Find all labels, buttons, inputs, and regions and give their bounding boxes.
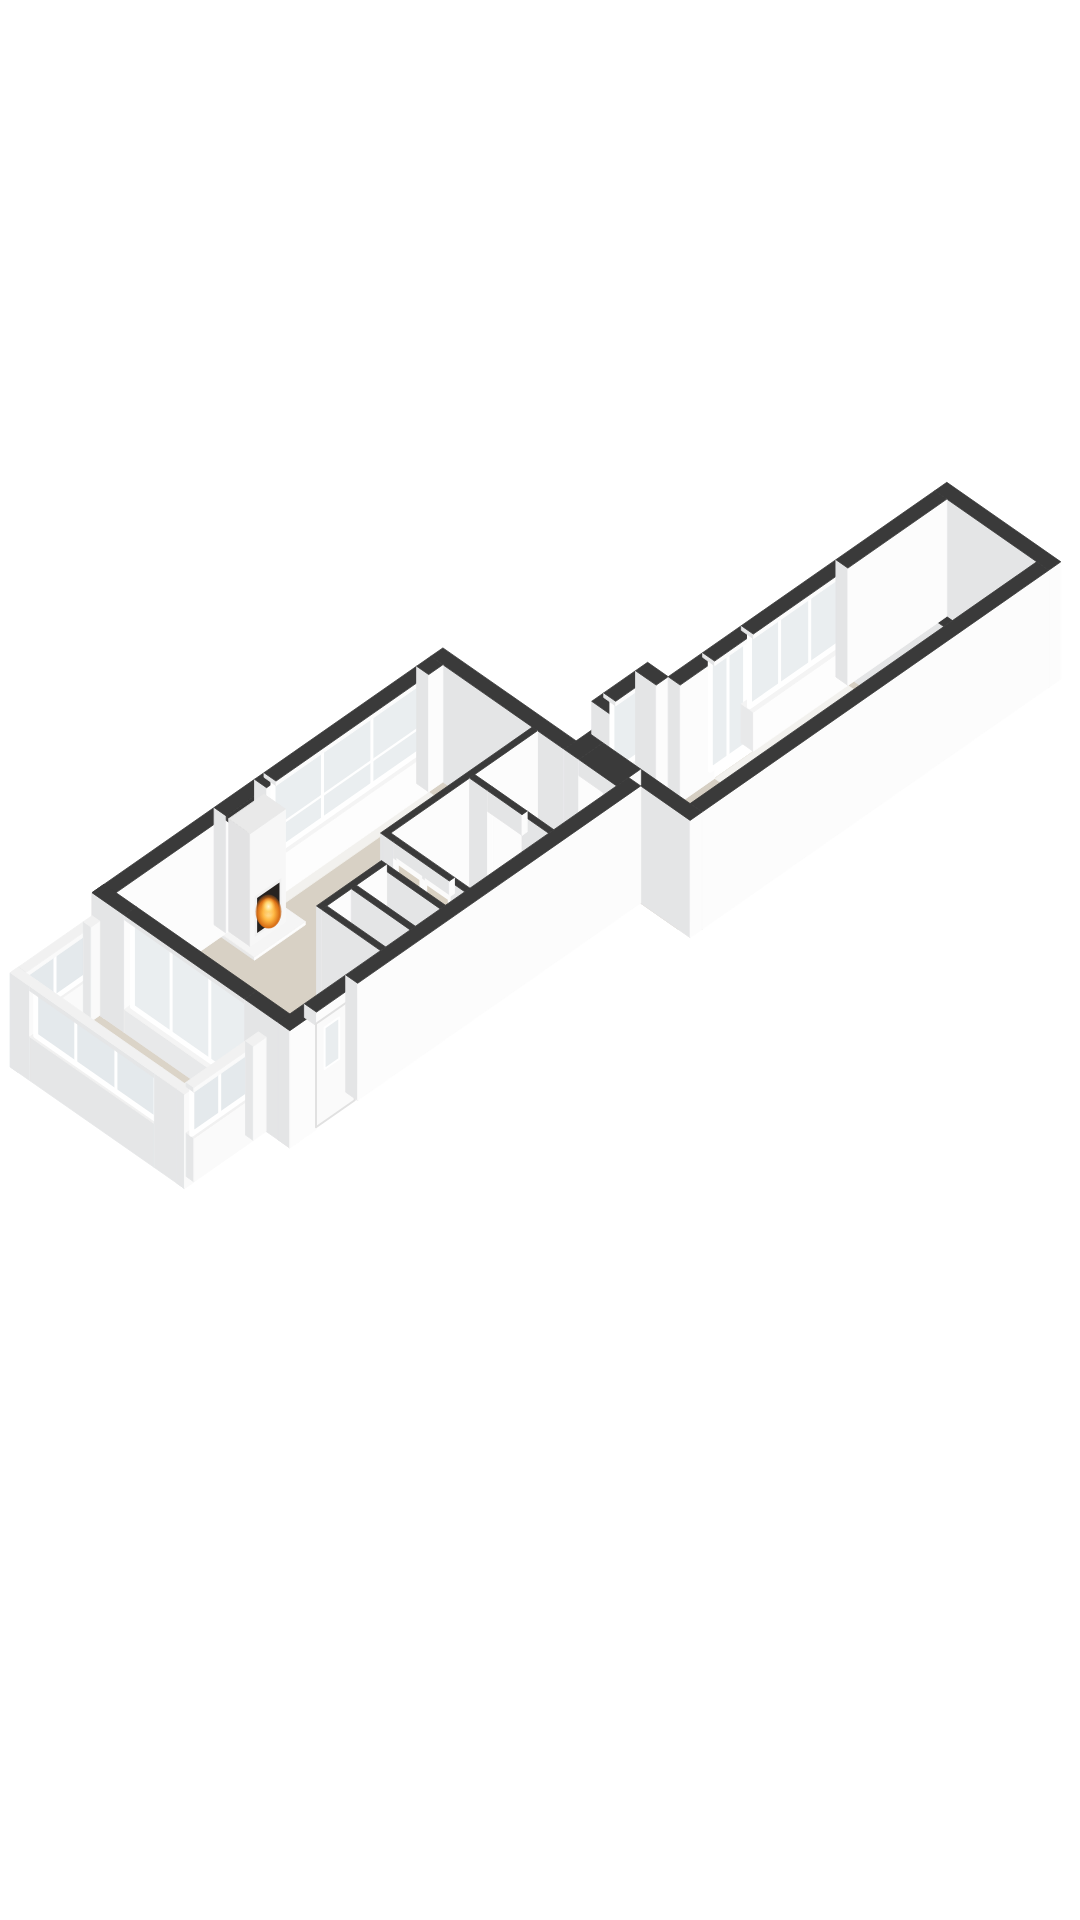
rear-window-mullion-1: [778, 611, 781, 687]
rear-window-mullion-2: [808, 590, 811, 666]
living-sw-window-mullion-2: [208, 970, 211, 1062]
fireplace-column-face-sw: [229, 819, 251, 947]
living-long-window-mullion-2: [370, 711, 373, 787]
balcony-sw-rail-a-face-sw: [10, 973, 29, 1081]
balcony-se-rail-sill-face-sw: [186, 1133, 194, 1182]
fireplace-flame-core: [261, 897, 275, 916]
living-se-wall-a-face-sw: [278, 1022, 290, 1148]
living-nw-wall-c-face-sw: [417, 666, 429, 792]
inner-door-lintel-face-se: [522, 811, 527, 835]
living-nw-wall-chimney-back-face-sw: [214, 808, 226, 934]
rear-glazed-door-mullion-1: [727, 647, 730, 759]
balcony-se-rail-b-face-sw: [246, 1041, 254, 1141]
balcony-se-rail-a-face-sw: [177, 1089, 185, 1189]
storage-ne-wall-face-se: [1049, 562, 1061, 688]
floorplan-3d-render: [0, 0, 1080, 1920]
living-nw-wall-c-face-se: [429, 665, 443, 792]
living-long-window-mullion-1: [321, 745, 324, 821]
balcony-se-rail-b-face-se: [253, 1037, 266, 1140]
entrance-door-window: [325, 1017, 340, 1069]
living-sw-window-mullion-1: [170, 943, 173, 1035]
balcony-nw-rail-b-face-se: [91, 921, 100, 1021]
floorplan-viewport: [0, 0, 1080, 1920]
living-se-wall-b-face-sw: [346, 975, 358, 1101]
rear-sw-end-wall-face-se: [690, 812, 702, 938]
living-se-wall-a-face-se: [290, 1012, 317, 1148]
balcony-nw-rail-b-face-sw: [83, 922, 91, 1022]
rear-nw-wall-b-face-sw: [668, 677, 680, 803]
rear-nw-wall-c-face-sw: [836, 560, 848, 686]
